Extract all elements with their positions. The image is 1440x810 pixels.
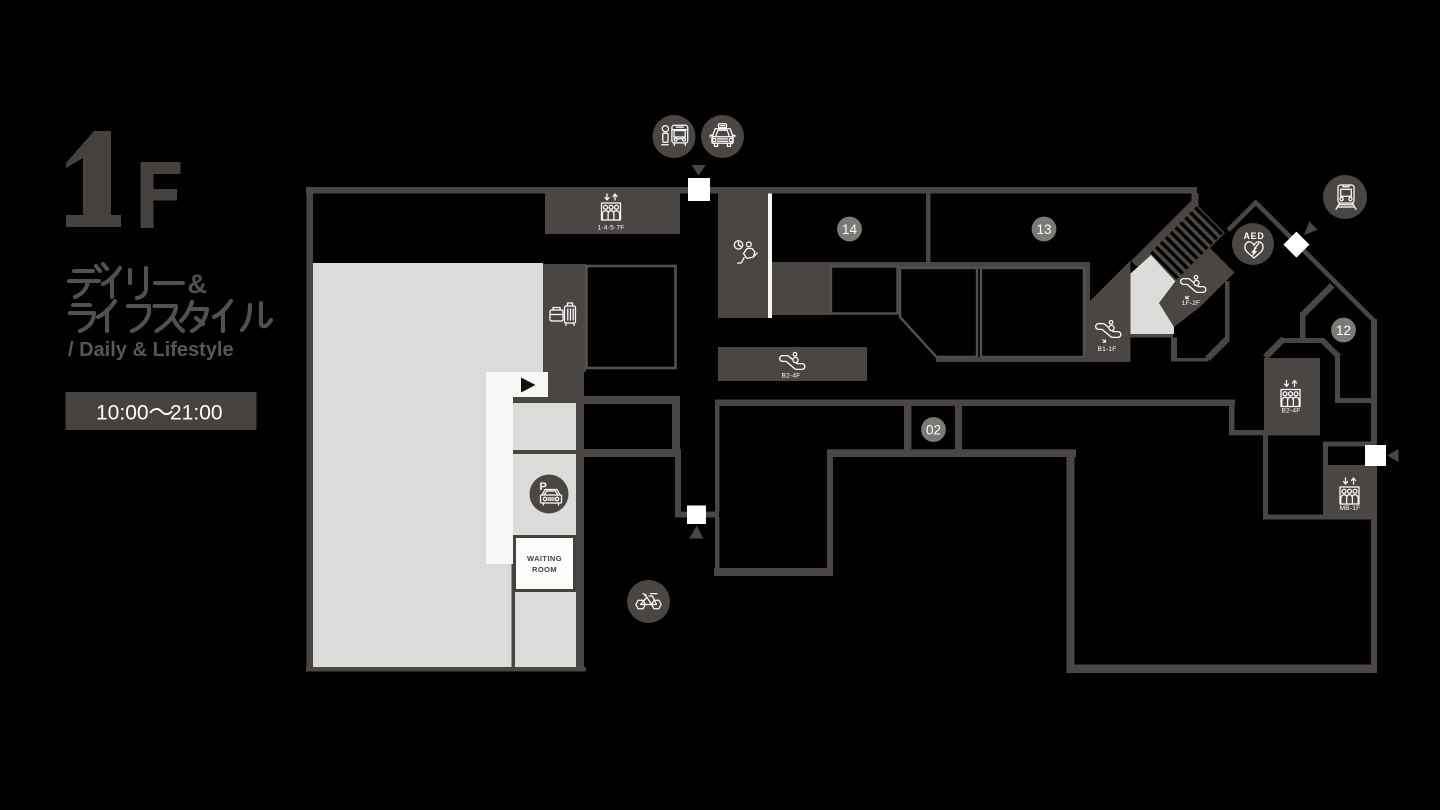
svg-text:B2-4F: B2-4F bbox=[1282, 408, 1301, 415]
svg-text:1F-2F: 1F-2F bbox=[1182, 300, 1201, 307]
svg-text:B1-1F: B1-1F bbox=[1098, 346, 1117, 353]
svg-text:02: 02 bbox=[926, 422, 941, 437]
svg-text:WAITING: WAITING bbox=[527, 554, 562, 563]
svg-text:10:00: 10:00 bbox=[96, 402, 149, 425]
svg-text:13: 13 bbox=[1036, 222, 1051, 237]
svg-text:MB-1F: MB-1F bbox=[1340, 505, 1361, 512]
svg-text:&: & bbox=[188, 269, 208, 299]
svg-text:12: 12 bbox=[1336, 323, 1351, 338]
svg-text:B2-4F: B2-4F bbox=[782, 373, 801, 380]
svg-text:1·4·5·7F: 1·4·5·7F bbox=[598, 225, 625, 232]
svg-text:21:00: 21:00 bbox=[170, 402, 223, 425]
svg-text:AED: AED bbox=[1244, 231, 1265, 241]
svg-text:/ Daily & Lifestyle: / Daily & Lifestyle bbox=[68, 339, 234, 361]
svg-text:ROOM: ROOM bbox=[532, 565, 557, 574]
svg-text:14: 14 bbox=[842, 222, 858, 237]
